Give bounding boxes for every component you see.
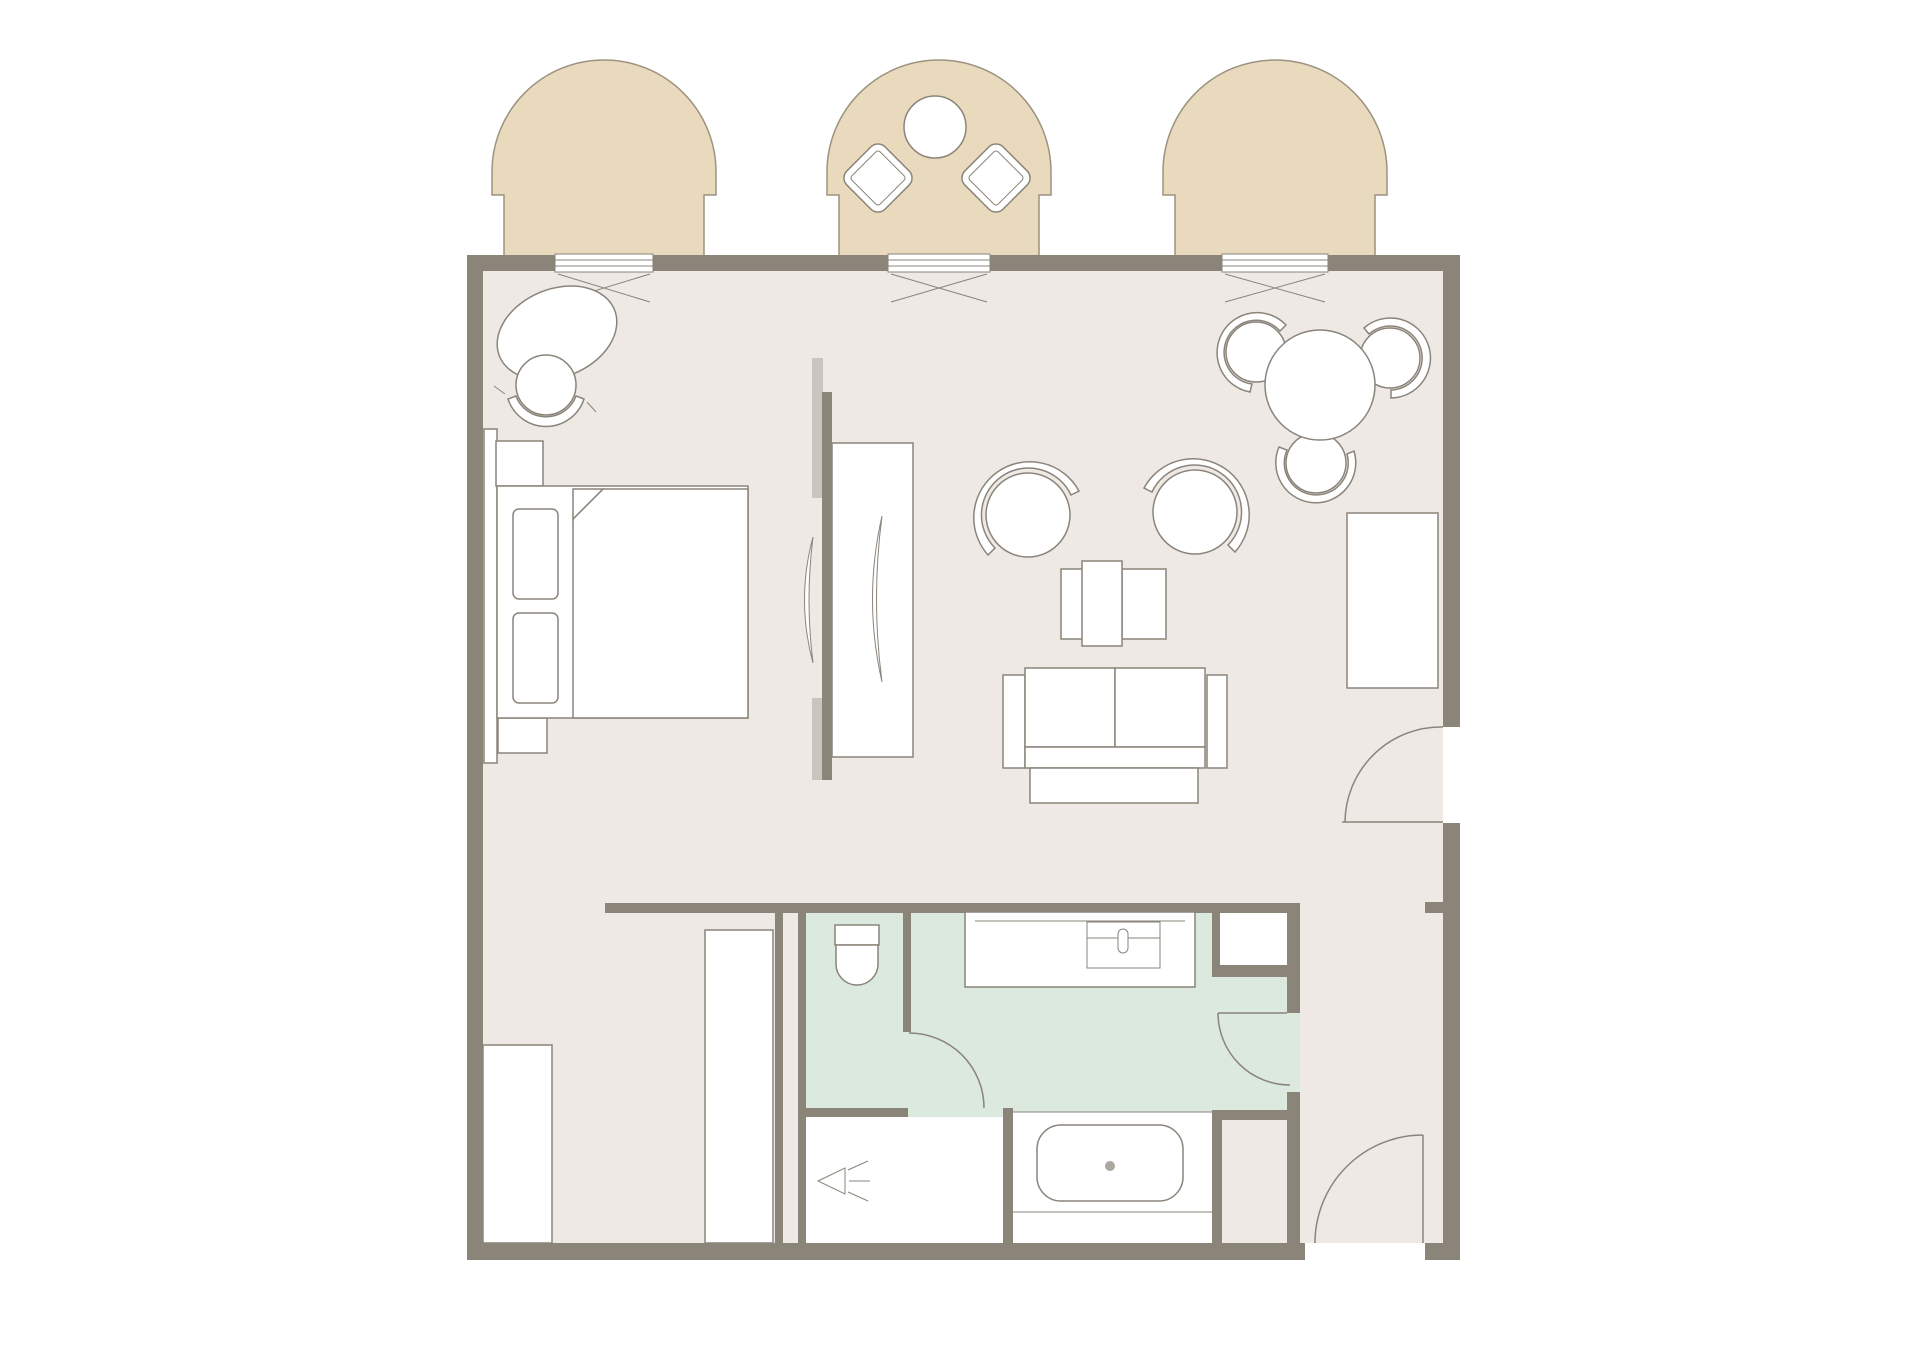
tub-room-right-wall — [1212, 1110, 1222, 1243]
balcony-right — [1163, 60, 1387, 257]
bathtub-drain — [1105, 1161, 1115, 1171]
shower-tub-divider-wall — [1003, 1108, 1013, 1243]
closet-corridor — [705, 930, 773, 1243]
niche-wall-left — [1212, 913, 1220, 977]
bed-pillow-top — [513, 509, 558, 599]
window-2-frame — [888, 254, 990, 272]
closet-bottom-left — [483, 1045, 552, 1243]
sofa-seat-right — [1115, 668, 1205, 747]
sofa-back-cushion — [1030, 768, 1198, 803]
bathroom-right-wall-upper — [1287, 913, 1300, 1013]
top-wall-segment-2 — [653, 255, 888, 271]
sofa-arm-right — [1207, 675, 1227, 768]
toilet-divider-wall — [903, 913, 911, 1032]
window-1-frame — [555, 254, 653, 272]
dining-chair-bottom-seat — [1286, 433, 1346, 493]
bed-headboard-panel — [484, 429, 497, 763]
lounge-ottoman — [516, 355, 576, 415]
bed-pillow-bottom — [513, 613, 558, 703]
right-exterior-wall-lower — [1443, 823, 1460, 1260]
bed-nightstand-bottom — [498, 718, 547, 753]
tv-wall-panel-lower — [812, 698, 823, 780]
floor-plan-canvas — [0, 0, 1920, 1348]
coffee-table-right — [1122, 569, 1166, 639]
bottom-exterior-wall-left — [467, 1243, 1305, 1260]
balcony-left — [492, 60, 716, 257]
bed-nightstand-top — [496, 441, 543, 486]
bed-duvet — [573, 489, 748, 718]
niche-wall-bottom — [1220, 965, 1287, 977]
sofa-seat-left — [1025, 668, 1115, 747]
toilet-bowl — [836, 945, 878, 985]
corridor-wall-left — [775, 913, 783, 1243]
right-exterior-wall-upper — [1443, 255, 1460, 727]
bathroom-bottom-right-wall — [1212, 1110, 1300, 1120]
corridor-wall-right — [798, 913, 806, 1243]
armchair-right-seat — [1153, 470, 1237, 554]
balconies-layer — [492, 60, 1387, 257]
sofa-arm-left — [1003, 675, 1025, 768]
balcony-round-table — [904, 96, 966, 158]
console-bench — [1347, 513, 1438, 688]
top-wall-segment-4 — [1328, 255, 1460, 271]
sofa-front-rail — [1025, 747, 1205, 768]
floor-plan-page — [0, 0, 1920, 1348]
toilet-tank — [835, 925, 879, 945]
window-3-frame — [1222, 254, 1328, 272]
partition-wall-stub — [1425, 902, 1443, 913]
bottom-exterior-wall-right — [1425, 1243, 1460, 1260]
armchair-left-seat — [986, 473, 1070, 557]
hall-niche-floor — [1220, 913, 1287, 965]
tv-wall-panel-upper — [812, 358, 823, 498]
dining-table — [1265, 330, 1375, 440]
vanity-faucet — [1118, 929, 1128, 953]
shower-room-floor — [806, 1117, 1003, 1243]
top-wall-segment-3 — [990, 255, 1222, 271]
tv-divider-panel — [822, 392, 832, 780]
toilet-room-bottom-wall — [806, 1108, 908, 1117]
left-exterior-wall — [467, 255, 483, 1260]
coffee-table-tray — [1082, 561, 1122, 646]
